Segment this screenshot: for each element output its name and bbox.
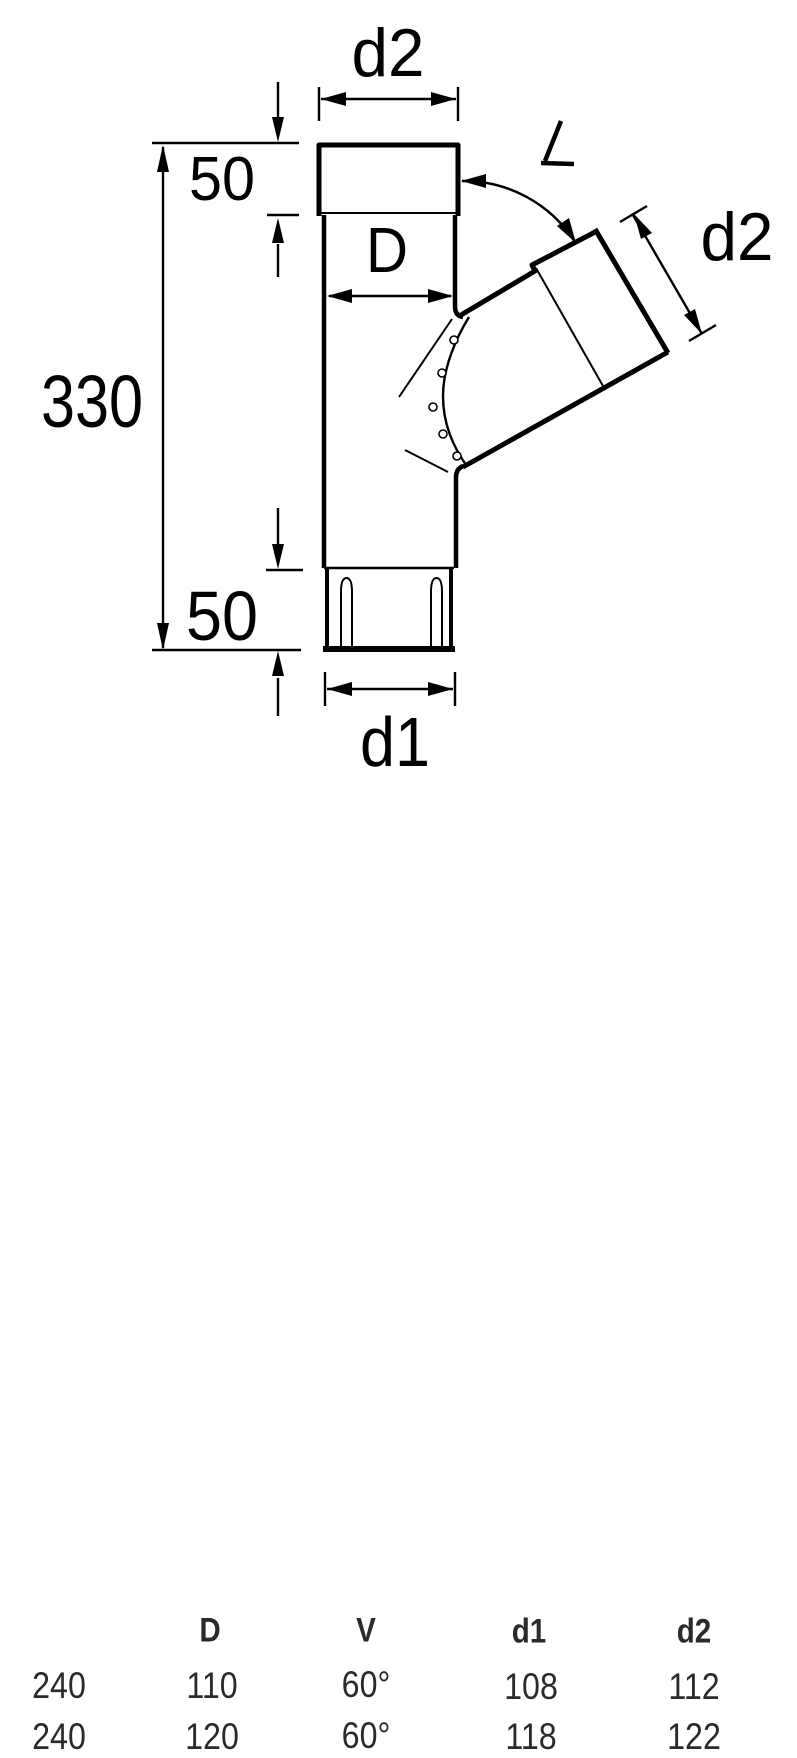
branch-top-edge — [461, 231, 597, 315]
dim-label-branch-d2: d2 — [701, 199, 774, 275]
crimp-slot-left — [341, 578, 352, 648]
arrowhead-left — [327, 289, 352, 303]
dim-label-d1: d1 — [360, 703, 430, 781]
rivet-dots — [429, 336, 461, 460]
table-cell: 112 — [668, 1666, 719, 1708]
arrowhead-upper — [634, 214, 652, 239]
table-header-d2: d2 — [677, 1613, 712, 1652]
branch-outline — [461, 229, 668, 467]
angle-symbol-base — [541, 163, 574, 164]
dim-label-D: D — [366, 214, 408, 286]
arrowhead-left — [327, 682, 352, 696]
angle-arc — [462, 181, 575, 242]
arrowhead-left — [321, 92, 346, 106]
dim-tick — [620, 206, 647, 222]
dim-label-top-d2: d2 — [352, 15, 425, 91]
table-cell: 240 — [32, 1665, 86, 1707]
rivet-dot — [438, 369, 446, 377]
table-cell: 120 — [185, 1716, 239, 1758]
arrowhead-lower — [684, 309, 702, 334]
table-cell: 118 — [505, 1716, 556, 1758]
arrowhead-down — [272, 544, 284, 569]
dimension-d1 — [325, 672, 455, 706]
arrowhead-up — [157, 145, 169, 172]
angle-symbol-icon — [541, 121, 574, 164]
table-cell: 60° — [342, 1715, 391, 1757]
dim-label-330: 330 — [41, 360, 143, 443]
dimension-top-d2 — [319, 87, 458, 121]
table-header-D: D — [199, 1612, 220, 1651]
table-cell: 60° — [342, 1664, 391, 1706]
rivet-dot — [439, 430, 447, 438]
arrowhead-right — [431, 92, 456, 106]
rivet-dot — [429, 403, 437, 411]
rivet-dot — [450, 336, 458, 344]
seam-thin-line-lower — [405, 450, 448, 472]
arrowhead-down — [157, 623, 169, 650]
arrowhead-down — [272, 117, 284, 142]
top-socket-outline — [319, 145, 458, 216]
dim-label-top-50: 50 — [189, 145, 255, 214]
pipe-right-wall-lower — [456, 466, 463, 568]
arrowhead-up — [272, 651, 284, 676]
table-header-V: V — [356, 1612, 376, 1651]
table-header-d1: d1 — [512, 1613, 547, 1652]
arrowhead-right — [428, 682, 453, 696]
arrowhead-right — [428, 289, 453, 303]
table-cell: 110 — [186, 1665, 237, 1707]
dimension-angle — [461, 121, 576, 243]
branch-end-face — [595, 229, 668, 353]
branch-socket-shoulder-line — [536, 268, 603, 386]
branch-bottom-edge — [463, 352, 668, 467]
crimp-slot-right — [431, 578, 442, 648]
table-cell: 240 — [32, 1716, 86, 1758]
drawing-canvas: d2 50 330 50 — [0, 0, 797, 1000]
spec-table: D V d1 d2 240 110 60° 108 112 240 120 60… — [0, 790, 797, 1000]
pipe-right-wall-upper — [455, 215, 463, 317]
arrowhead-arc-start — [461, 174, 486, 188]
junction-seam — [399, 317, 469, 472]
dim-label-bottom-50: 50 — [186, 577, 258, 655]
table-cell: 108 — [504, 1666, 558, 1708]
rivet-dot — [453, 452, 461, 460]
angle-symbol-diagonal — [545, 121, 561, 161]
pipe-branch-drawing: d2 50 330 50 — [0, 0, 797, 790]
dimension-D — [327, 289, 453, 303]
dimension-bottom-50 — [266, 508, 303, 716]
arrowhead-up — [272, 218, 284, 243]
table-cell: 122 — [667, 1716, 721, 1758]
